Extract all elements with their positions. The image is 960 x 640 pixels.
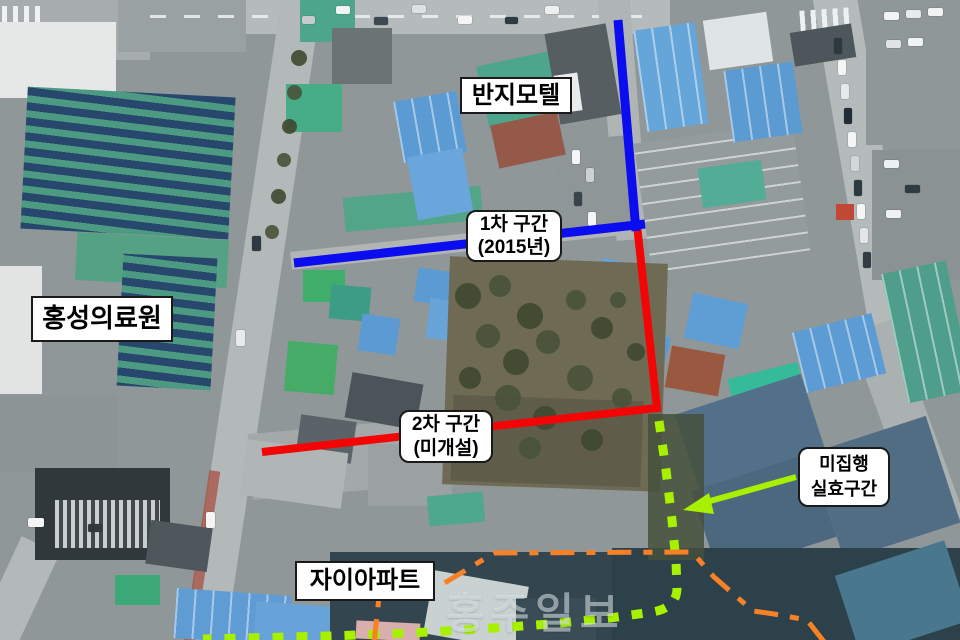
map-tree xyxy=(489,275,511,297)
map-tree xyxy=(271,189,286,204)
map-car xyxy=(841,84,849,99)
map-tree xyxy=(282,119,297,134)
map-tree xyxy=(517,303,543,329)
map-building xyxy=(0,22,116,98)
map-car xyxy=(854,180,862,196)
map-building xyxy=(145,520,213,572)
map-building xyxy=(20,87,235,240)
map-building xyxy=(118,0,246,52)
label-section-2-line1: 2차 구간 xyxy=(412,413,480,436)
map-car xyxy=(302,16,315,24)
label-banji-motel: 반지모텔 xyxy=(460,77,572,114)
label-hongseong-medical-center: 홍성의료원 xyxy=(31,296,173,342)
map-tree xyxy=(581,429,603,451)
map-car xyxy=(908,38,923,46)
map-tree xyxy=(533,406,557,430)
label-section-2-line2: (미개설) xyxy=(413,437,478,460)
map-car xyxy=(88,524,102,532)
map-tree xyxy=(287,85,302,100)
label-unexecuted-line2: 실효구간 xyxy=(811,477,877,502)
map-building xyxy=(836,204,854,220)
label-section-1-line1: 1차 구간 xyxy=(480,213,548,236)
label-xi-apartment-text: 자이아파트 xyxy=(310,566,420,595)
map-car xyxy=(905,185,920,193)
map-tree xyxy=(627,343,645,361)
map-car xyxy=(884,160,899,168)
map-building xyxy=(665,346,725,397)
map-building xyxy=(407,148,473,221)
map-ground xyxy=(0,396,118,472)
map-tree xyxy=(476,324,500,348)
map-parking xyxy=(554,135,640,235)
map-tree xyxy=(536,330,560,354)
map-tree xyxy=(612,388,632,408)
map-car xyxy=(206,512,215,528)
map-car xyxy=(236,330,245,346)
map-tree xyxy=(495,385,521,411)
map-car xyxy=(928,8,943,16)
map-tree xyxy=(519,437,541,459)
map-building xyxy=(633,22,709,132)
map-car xyxy=(588,212,596,226)
map-building xyxy=(284,341,338,395)
map-car xyxy=(336,6,350,14)
map-tree xyxy=(566,290,586,310)
map-car xyxy=(586,168,594,182)
map-building xyxy=(115,575,160,605)
map-building xyxy=(254,601,336,640)
map-building xyxy=(703,12,773,70)
map-car xyxy=(857,204,865,219)
map-car xyxy=(252,236,261,251)
map-car xyxy=(834,38,842,54)
map-tree xyxy=(459,367,481,389)
map-ground xyxy=(648,414,704,560)
label-section-2: 2차 구간 (미개설) xyxy=(399,410,493,463)
map-building xyxy=(332,28,392,84)
map-building xyxy=(55,500,160,548)
map-car xyxy=(505,17,518,24)
map-road-centerline xyxy=(150,15,655,18)
map-tree xyxy=(591,317,613,339)
map-building xyxy=(723,61,802,142)
map-building xyxy=(358,314,401,356)
map-car xyxy=(545,6,559,14)
map-car xyxy=(884,12,899,20)
map-car xyxy=(886,210,901,218)
map-car xyxy=(572,150,580,164)
map-tree xyxy=(265,225,279,239)
map-car xyxy=(906,10,921,18)
map-car xyxy=(574,192,582,206)
map-car xyxy=(458,16,472,24)
map-tree xyxy=(291,50,307,66)
map-car xyxy=(412,5,426,13)
watermark-hongju-ilbo: 홍주일보 xyxy=(446,580,625,640)
label-section-1-line2: (2015년) xyxy=(478,236,550,259)
map-tree xyxy=(503,349,529,375)
map-car xyxy=(28,518,44,527)
label-banji-motel-text: 반지모텔 xyxy=(472,81,560,110)
map-building xyxy=(356,620,421,640)
map-tree xyxy=(567,365,593,391)
map-tree xyxy=(610,292,626,308)
label-unexecuted-line1: 미집행 xyxy=(819,452,869,477)
map-car xyxy=(838,60,846,75)
map-car xyxy=(844,108,852,124)
map-building xyxy=(684,293,748,350)
map-car xyxy=(374,17,388,25)
label-unexecuted-expired-section: 미집행 실효구간 xyxy=(798,447,890,507)
map-tree xyxy=(455,283,481,309)
map-parking xyxy=(866,0,960,145)
label-hongseong-medical-center-text: 홍성의료원 xyxy=(42,303,162,335)
map-car xyxy=(860,228,868,243)
map-building xyxy=(427,492,485,527)
map-car xyxy=(886,40,901,48)
aerial-map: 반지모텔 1차 구간 (2015년) 홍성의료원 2차 구간 (미개설) 미집행… xyxy=(0,0,960,640)
label-xi-apartment: 자이아파트 xyxy=(295,561,435,601)
label-section-1: 1차 구간 (2015년) xyxy=(466,210,562,262)
map-car xyxy=(848,132,856,147)
map-car xyxy=(863,252,871,268)
map-car xyxy=(851,156,859,171)
map-tree xyxy=(277,153,291,167)
